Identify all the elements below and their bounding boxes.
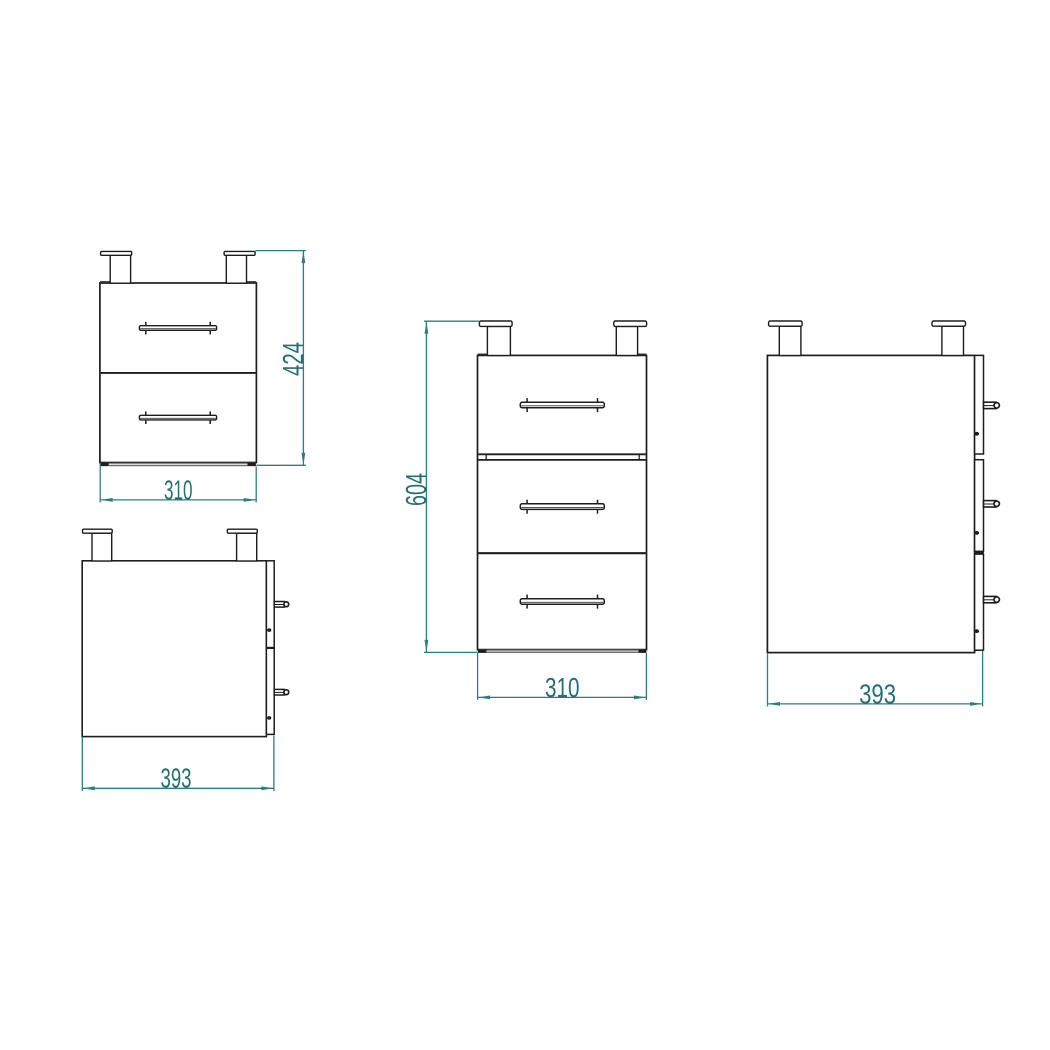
svg-text:310: 310 — [545, 672, 580, 703]
svg-text:393: 393 — [161, 763, 192, 794]
svg-text:393: 393 — [859, 678, 896, 709]
svg-text:604: 604 — [401, 473, 433, 506]
svg-text:310: 310 — [164, 474, 193, 505]
svg-text:424: 424 — [278, 342, 310, 376]
